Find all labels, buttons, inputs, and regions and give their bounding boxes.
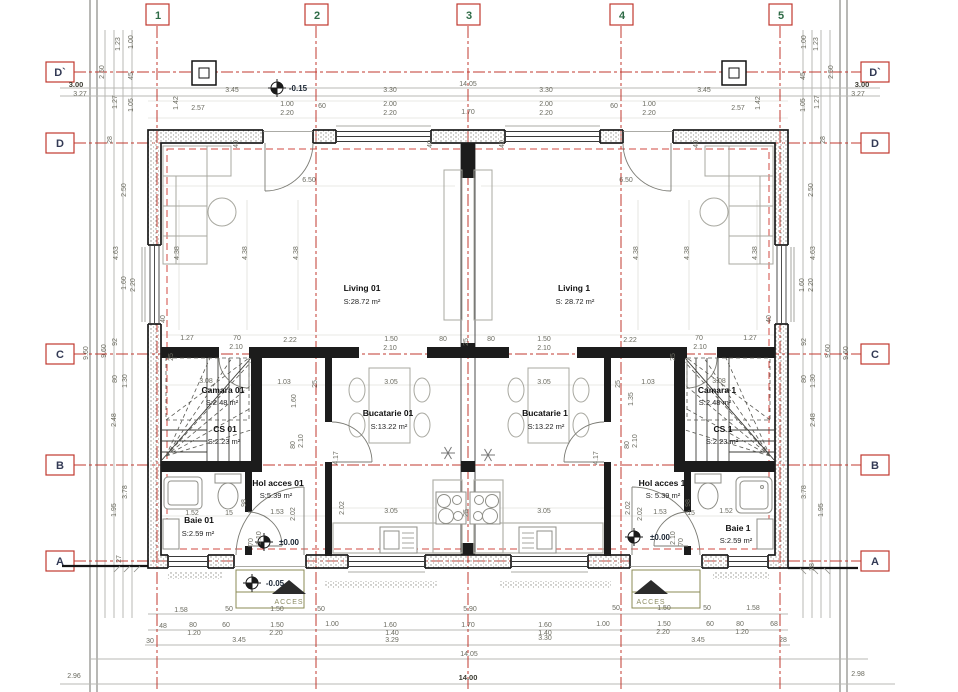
grid-row-label: D` [869, 67, 881, 79]
coffee-table-left [208, 198, 236, 226]
pavement-strip [499, 581, 611, 588]
dimension-label: 3.45 [691, 637, 705, 644]
floor-plan: 12345D`DCBAD`DCBALiving 01S:28.72 m²Livi… [0, 0, 958, 692]
room-name-label: Living 1 [558, 283, 590, 293]
dimension-label: 2.20 [280, 110, 294, 117]
dimension-label: 3.45 [697, 87, 711, 94]
dimension-label: 1.05 [800, 98, 807, 112]
pavement-strip [167, 572, 223, 579]
room-area-label: S:2.23 m² [208, 437, 241, 446]
dimension-label: 9.60 [825, 344, 832, 358]
dimension-label: 1.30 [122, 374, 129, 388]
dimension-label: 1.60 [538, 622, 552, 629]
room-name-label: Bucatarie 01 [363, 408, 414, 418]
boiler-symbol-left [441, 447, 455, 459]
dimension-label: 4.17 [593, 451, 600, 465]
terrace-door-right [623, 129, 673, 145]
dimension-label: 1.35 [628, 392, 635, 406]
room-area-label: S:2.48 m² [206, 398, 239, 407]
dimension-label: 14.05 [459, 81, 477, 88]
dimension-label: 92 [801, 338, 808, 346]
dimension-label: 50 [317, 606, 325, 613]
dimension-label: 14.05 [460, 651, 478, 658]
dimension-label: 1.50 [270, 606, 284, 613]
dimension-label: 1.60 [799, 278, 806, 292]
dimension-label: 25 [168, 353, 175, 361]
dimension-label: 1.70 [461, 109, 475, 116]
dimension-label: 2.20 [130, 278, 137, 292]
dimension-label: 2.20 [539, 110, 553, 117]
window-top-left [336, 126, 431, 145]
window-bath-left [168, 554, 208, 570]
toilet-right-bowl [698, 483, 718, 509]
room-area-label: S:2.59 m² [182, 529, 215, 538]
entry-door-right [630, 554, 702, 570]
dimension-label: 15 [687, 510, 695, 517]
chair [573, 378, 589, 402]
dimension-label: 1.00 [642, 101, 656, 108]
dimension-label: 2.50 [808, 183, 815, 197]
dimension-label: 9.60 [843, 346, 850, 360]
dimension-label: 70 [695, 335, 703, 342]
dimension-label: 1.52 [185, 510, 199, 517]
toilet-left-tank [215, 474, 241, 483]
grid-column-label: 1 [155, 10, 161, 22]
grid-column-label: 5 [778, 10, 784, 22]
dimension-label: 1.60 [121, 276, 128, 290]
chair [349, 378, 365, 402]
dimension-total-label: 3.00 [69, 80, 84, 89]
room-area-label: S: 5.39 m² [646, 491, 681, 500]
dimension-label: 28 [107, 136, 114, 144]
window-kitchen-right [511, 554, 588, 573]
pavement-strip [713, 572, 769, 579]
dimension-label: 40 [427, 140, 434, 148]
room-name-label: Camara 01 [201, 385, 244, 395]
grid-row-label: B [871, 460, 879, 472]
dimension-total-label: 3.00 [855, 80, 870, 89]
dimension-label: 1.00 [801, 35, 808, 49]
dimension-label: 2.50 [828, 65, 835, 79]
dimension-label: 1.05 [128, 98, 135, 112]
room-area-label: S:28.72 m² [344, 297, 381, 306]
dimension-label: 70 [248, 538, 255, 546]
access-label: ACCES [274, 599, 303, 606]
dimension-label: 2.10 [693, 344, 707, 351]
dimension-label: 3.45 [225, 87, 239, 94]
dimension-label: 1.30 [810, 374, 817, 388]
sofa-left-top [163, 146, 231, 176]
dimension-label: 60 [610, 103, 618, 110]
dimension-label: 27 [116, 555, 123, 563]
dimension-rails [60, 0, 895, 692]
room-name-label: CS 1 [714, 424, 733, 434]
dimension-label: 1.52 [719, 508, 733, 515]
dimension-label: 1.60 [291, 394, 298, 408]
dimension-label: 48 [159, 623, 167, 630]
window-living-left [142, 245, 163, 324]
dimension-label: 60 [318, 103, 326, 110]
dimension-label: 28 [820, 136, 827, 144]
level-marker [625, 528, 643, 546]
dimension-label: 2.10 [383, 345, 397, 352]
dimension-label: 1.42 [173, 96, 180, 110]
dimension-label: 3.45 [232, 637, 246, 644]
dimension-label: 1.27 [180, 335, 194, 342]
dimension-label: 98 [685, 499, 692, 507]
dimension-label: 1.50 [657, 605, 671, 612]
chair [414, 413, 430, 437]
dimension-label: 1.03 [277, 379, 291, 386]
dimension-label: 4.38 [174, 246, 181, 260]
dimension-label: 4.63 [113, 246, 120, 260]
dimension-label: 2.96 [67, 673, 81, 680]
level-label: -0.15 [289, 84, 308, 93]
dimension-label: 2.20 [656, 629, 670, 636]
coffee-table-right [700, 198, 728, 226]
grid-row-label: C [871, 349, 879, 361]
sofa-right-top [705, 146, 773, 176]
room-area-label: S:2.23 m² [706, 437, 739, 446]
dimension-label: 1.53 [270, 509, 284, 516]
dimension-label: 80 [290, 441, 297, 449]
dimension-label: 40 [499, 140, 506, 148]
dimension-label: 4.38 [293, 246, 300, 260]
dimension-label: 40 [766, 315, 773, 323]
dimension-label: 45 [128, 72, 135, 80]
dimension-label: 3.05 [384, 379, 398, 386]
grid-row-label: A [871, 556, 879, 568]
dimension-label: 1.20 [735, 629, 749, 636]
room-area-label: S:5.39 m² [260, 491, 293, 500]
washbasin-left [163, 519, 179, 549]
dimension-label: 15 [225, 510, 233, 517]
room-name-label: Camara 1 [698, 385, 737, 395]
window-bath-right [728, 554, 768, 570]
dimension-label: 3.05 [384, 508, 398, 515]
room-area-label: S:2.59 m² [720, 536, 753, 545]
dimension-label: 2.02 [625, 501, 632, 515]
dimension-label: 4.38 [242, 246, 249, 260]
dimension-label: 68 [770, 621, 778, 628]
dimension-label: 2.10 [256, 531, 263, 545]
dimension-label: 28 [809, 563, 816, 571]
dimension-label: 4.38 [752, 246, 759, 260]
dimension-label: 45 [800, 72, 807, 80]
dimension-label: 4.38 [684, 246, 691, 260]
dimension-label: 3.30 [539, 87, 553, 94]
dimension-label: 2.10 [670, 531, 677, 545]
dimension-label: 1.50 [384, 336, 398, 343]
grid-column-label: 2 [314, 10, 320, 22]
dimension-label: 4.63 [810, 246, 817, 260]
dimension-label: 4.17 [333, 451, 340, 465]
dimension-label: 6.50 [302, 177, 316, 184]
dimension-label: 1.40 [385, 630, 399, 637]
dimension-label: 2.10 [632, 434, 639, 448]
dimension-label: 25 [312, 380, 319, 388]
dimension-label: 40 [233, 140, 240, 148]
post-left [192, 61, 216, 85]
dimension-label: 2.02 [339, 501, 346, 515]
dimension-label: 70 [678, 538, 685, 546]
dimension-label: 1.03 [641, 379, 655, 386]
dimension-label: 3.08 [199, 378, 213, 385]
dimension-label: 2.98 [851, 671, 865, 678]
dimension-label: 1.27 [112, 95, 119, 109]
dimension-label: 3.30 [538, 635, 552, 642]
dimension-label: 2.22 [623, 337, 637, 344]
toilet-left-bowl [218, 483, 238, 509]
grid-row-label: C [56, 349, 64, 361]
dimension-label: 80 [189, 622, 197, 629]
dimension-label: 2.48 [810, 413, 817, 427]
room-area-label: S:13.22 m² [371, 422, 408, 431]
dimension-label: 9.60 [101, 344, 108, 358]
dimension-label: 98 [241, 499, 248, 507]
dimension-label: 2.02 [290, 507, 297, 521]
dimension-label: 2.10 [298, 434, 305, 448]
dimension-label: 92 [112, 338, 119, 346]
dimension-label: 80 [801, 375, 808, 383]
dimension-label: 1.23 [813, 37, 820, 51]
entry-door-left [234, 554, 306, 570]
dimension-label: 80 [624, 441, 631, 449]
room-area-label: S: 28.72 m² [556, 297, 595, 306]
room-name-label: CS 01 [213, 424, 237, 434]
dimension-label: 3.27 [73, 91, 87, 98]
dimension-label: 1.58 [746, 605, 760, 612]
dimension-label: 1.53 [653, 509, 667, 516]
room-name-label: Bucatarie 1 [522, 408, 568, 418]
dimension-label: 30 [146, 638, 154, 645]
dimension-label: 1.27 [743, 335, 757, 342]
level-label: -0.05 [266, 579, 285, 588]
dimension-label: 70 [233, 335, 241, 342]
dimension-label: 2.50 [121, 183, 128, 197]
floor-plan-canvas: 12345D`DCBAD`DCBALiving 01S:28.72 m²Livi… [0, 0, 958, 692]
grid-column-label: 3 [466, 10, 472, 22]
chair [414, 378, 430, 402]
dimension-label: 25 [463, 338, 470, 346]
grid-row-label: D [871, 138, 879, 150]
dimension-label: 1.42 [755, 96, 762, 110]
room-area-label: S:13.22 m² [528, 422, 565, 431]
dimension-label: 28 [779, 637, 787, 644]
dimension-label: 2.20 [642, 110, 656, 117]
duct-left [444, 170, 462, 320]
dimension-label: 3.27 [851, 91, 865, 98]
dimension-label: 2.22 [283, 337, 297, 344]
post-right [722, 61, 746, 85]
dimension-label: 25 [463, 509, 470, 517]
dimension-label: 2.10 [229, 344, 243, 351]
dimension-label: 4.38 [633, 246, 640, 260]
dimension-label: 80 [439, 336, 447, 343]
pavement-strip [325, 581, 437, 588]
window-kitchen-left [348, 554, 425, 573]
dimension-label: 1.58 [174, 607, 188, 614]
dimension-label: 1.50 [270, 622, 284, 629]
dimension-label: 2.50 [99, 65, 106, 79]
terrace-door-left [263, 129, 313, 145]
grid-row-label: B [56, 460, 64, 472]
dimension-label: 2.20 [808, 278, 815, 292]
level-label: ±0.00 [279, 538, 300, 547]
duct-right [474, 170, 492, 320]
dimension-label: 40 [693, 140, 700, 148]
dimension-total-label: 14.00 [459, 673, 478, 682]
grid-row-label: A [56, 556, 64, 568]
dimension-label: 80 [487, 336, 495, 343]
dimension-label: 1.95 [818, 503, 825, 517]
dimension-label: 5.90 [463, 606, 477, 613]
dimension-label: 50 [225, 606, 233, 613]
dimension-label: 3.78 [122, 485, 129, 499]
dimension-label: 80 [112, 375, 119, 383]
dimension-label: 2.00 [539, 101, 553, 108]
dimension-label: 1.00 [280, 101, 294, 108]
access-arrow-right [634, 580, 668, 594]
dimension-label: 1.70 [461, 622, 475, 629]
room-name-label: Hol acces 1 [639, 478, 686, 488]
dimension-label: 2.20 [383, 110, 397, 117]
toilet-right-tank [695, 474, 721, 483]
dimension-label: 3.08 [712, 378, 726, 385]
dimension-label: 1.00 [128, 35, 135, 49]
room-name-label: Hol acces 01 [252, 478, 304, 488]
dimension-label: 2.00 [383, 101, 397, 108]
dimension-label: 1.60 [383, 622, 397, 629]
sofa-left-side [163, 146, 207, 264]
room-area-label: S:2.48 m² [699, 398, 732, 407]
dimension-label: 2.10 [537, 345, 551, 352]
dimension-label: 25 [670, 353, 677, 361]
level-marker [243, 574, 261, 592]
window-top-right [505, 126, 600, 145]
dimension-label: 1.95 [111, 503, 118, 517]
dimension-label: 1.23 [115, 37, 122, 51]
boiler-symbol-right [481, 449, 495, 461]
dimension-label: 2.57 [191, 105, 205, 112]
dimension-label: 3.29 [385, 637, 399, 644]
dimension-label: 40 [160, 315, 167, 323]
room-name-label: Baie 1 [725, 523, 750, 533]
dimension-label: 50 [703, 605, 711, 612]
dimension-label: 3.05 [537, 379, 551, 386]
chair [508, 378, 524, 402]
dimension-label: 6.50 [619, 177, 633, 184]
dimension-label: 2.57 [731, 105, 745, 112]
dimension-label: 1.20 [187, 630, 201, 637]
dimension-label: 2.20 [269, 630, 283, 637]
dimension-label: 50 [612, 605, 620, 612]
dimension-label: 3.05 [537, 508, 551, 515]
window-living-right [774, 245, 795, 324]
sofa-right-side [729, 146, 773, 264]
dimension-label: 60 [706, 621, 714, 628]
dimension-label: 9.60 [83, 346, 90, 360]
dimension-label: 3.78 [801, 485, 808, 499]
dimension-label: 1.00 [596, 621, 610, 628]
level-marker [268, 79, 286, 97]
dimension-label: 1.00 [325, 621, 339, 628]
washbasin-right [757, 519, 773, 549]
dimension-label: 1.50 [537, 336, 551, 343]
level-label: ±0.00 [650, 533, 671, 542]
grid-row-label: D [56, 138, 64, 150]
dimension-label: 3.30 [383, 87, 397, 94]
grid-column-label: 4 [619, 10, 626, 22]
dimension-label: 1.50 [657, 621, 671, 628]
dimension-label: 2.48 [111, 413, 118, 427]
dimension-label: 80 [736, 621, 744, 628]
dimension-label: 25 [615, 380, 622, 388]
dimension-label: 60 [222, 622, 230, 629]
dimension-label: 2.02 [637, 507, 644, 521]
grid-row-label: D` [54, 67, 66, 79]
room-name-label: Living 01 [344, 283, 381, 293]
dimension-label: 1.27 [814, 95, 821, 109]
